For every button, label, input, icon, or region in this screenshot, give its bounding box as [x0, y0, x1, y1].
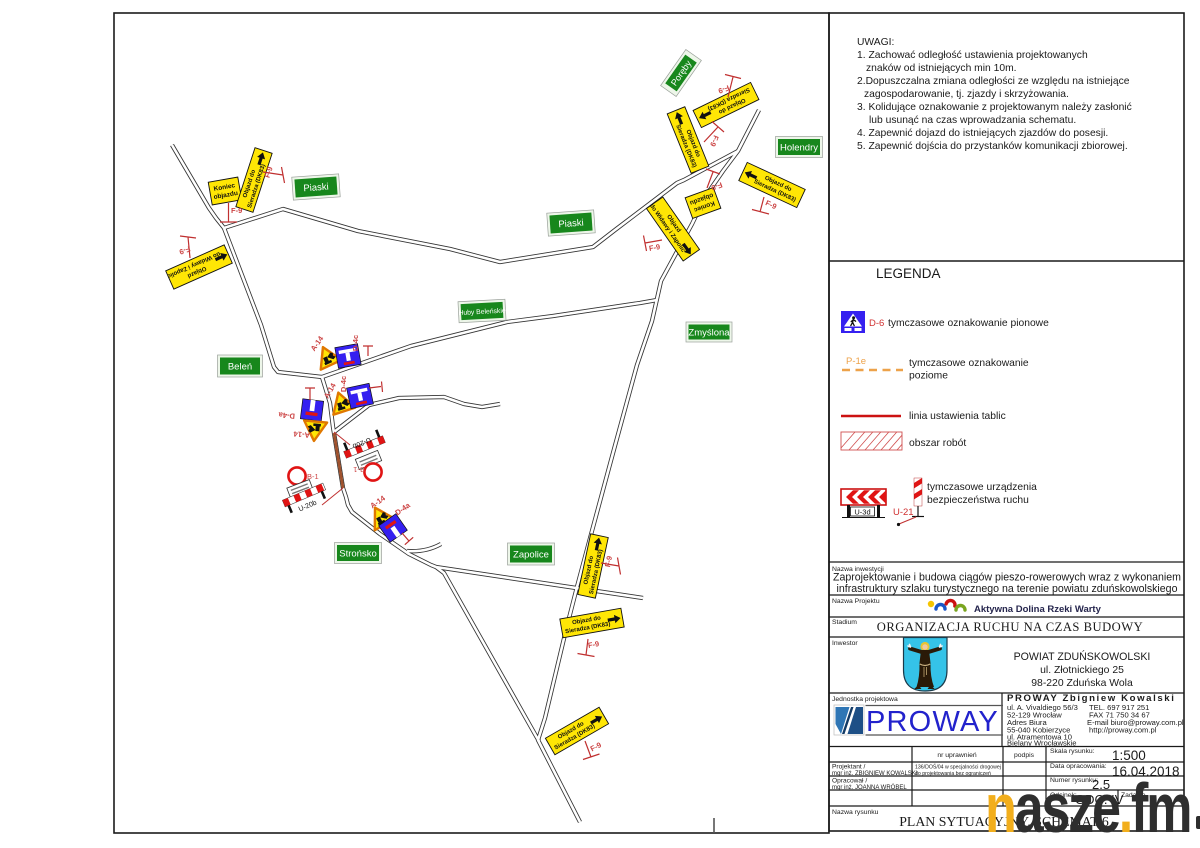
svg-text:LEGENDA: LEGENDA	[876, 266, 941, 281]
svg-text:5. Zapewnić dojścia do przysta: 5. Zapewnić dojścia do przystanków komun…	[857, 141, 1128, 152]
svg-text:U-3d: U-3d	[854, 508, 870, 517]
svg-text:linia ustawienia tablic: linia ustawienia tablic	[909, 411, 1006, 422]
svg-text:F-9: F-9	[589, 740, 603, 753]
svg-text:Nazwa Projektu: Nazwa Projektu	[832, 598, 880, 605]
svg-text:F-9: F-9	[764, 198, 778, 211]
svg-text:tymczasowe oznakowanie pionowe: tymczasowe oznakowanie pionowe	[888, 318, 1049, 329]
svg-text:F-9: F-9	[263, 165, 275, 178]
svg-text:PROWAY: PROWAY	[866, 706, 999, 738]
svg-text:mgr inż. ZBIGNIEW KOWALSKI: mgr inż. ZBIGNIEW KOWALSKI	[832, 771, 918, 777]
svg-text:Stadium: Stadium	[832, 619, 857, 626]
svg-text:Beleń: Beleń	[228, 361, 252, 372]
svg-text:A-14: A-14	[368, 493, 387, 510]
svg-text:ORGANIZACJA RUCHU NA CZAS BUDO: ORGANIZACJA RUCHU NA CZAS BUDOWY	[877, 620, 1144, 634]
svg-text:98-220 Zduńska Wola: 98-220 Zduńska Wola	[1031, 678, 1133, 689]
svg-text:1. Zachować odległość ustawien: 1. Zachować odległość ustawienia projekt…	[857, 50, 1088, 61]
svg-text:4. Zapewnić dojazd do istnieją: 4. Zapewnić dojazd do istniejących zjazd…	[857, 128, 1108, 139]
svg-text:F-9: F-9	[587, 639, 600, 650]
svg-text:Nazwa rysunku: Nazwa rysunku	[832, 809, 879, 816]
svg-text:2.Dopuszczalna zmiana odległoś: 2.Dopuszczalna zmiana odległości ze wzgl…	[857, 76, 1130, 87]
svg-text:Opracował /: Opracował /	[832, 778, 867, 785]
svg-text:Zmyślona: Zmyślona	[688, 327, 730, 338]
svg-text:mgr inż. JOANNA WRÓBEL: mgr inż. JOANNA WRÓBEL	[832, 784, 907, 791]
svg-text:3. Kolidujące oznakowanie z pr: 3. Kolidujące oznakowanie z projektowany…	[857, 102, 1132, 113]
svg-text:Jednostka projektowa: Jednostka projektowa	[832, 696, 898, 703]
svg-text:obszar robót: obszar robót	[909, 438, 966, 449]
svg-text:U-21: U-21	[893, 507, 914, 518]
svg-text:tymczasowe urządzenia: tymczasowe urządzenia	[927, 482, 1037, 493]
svg-text:lub usunąć na czas wprowadzani: lub usunąć na czas wprowadzania schematu…	[869, 115, 1076, 126]
svg-text:P-1e: P-1e	[846, 356, 866, 367]
svg-text:Zaprojektowanie i budowa ciągó: Zaprojektowanie i budowa ciągów pieszo-r…	[833, 572, 1181, 584]
svg-text:Inwestor: Inwestor	[832, 640, 858, 647]
svg-text:D-4c: D-4c	[339, 376, 348, 392]
svg-text:D-6: D-6	[869, 318, 884, 329]
svg-text:Piaski: Piaski	[558, 218, 584, 231]
svg-text:Zapolice: Zapolice	[513, 549, 549, 560]
svg-text:Holendry: Holendry	[780, 142, 818, 153]
svg-text:Skala rysunku:: Skala rysunku:	[1050, 748, 1095, 755]
svg-text:infrastruktury szlaku turystyc: infrastruktury szlaku turystycznego na t…	[837, 583, 1178, 595]
svg-text:D-4c: D-4c	[351, 335, 360, 351]
svg-text:UWAGI:: UWAGI:	[857, 37, 894, 48]
svg-text:zagospodarowanie, tj. zjazdy i: zagospodarowanie, tj. zjazdy i skrzyżowa…	[864, 89, 1069, 100]
svg-text:Strońsko: Strońsko	[339, 548, 377, 559]
svg-text:nr uprawnień: nr uprawnień	[937, 752, 977, 759]
svg-text:Aktywna Dolina Rzeki Warty: Aktywna Dolina Rzeki Warty	[974, 604, 1102, 615]
svg-text:do projektowania bez ogranicze: do projektowania bez ograniczeń	[915, 771, 991, 777]
svg-text:F-9: F-9	[603, 555, 614, 568]
svg-text:F-9: F-9	[231, 206, 242, 215]
svg-text:znaków od istniejących min 10m: znaków od istniejących min 10m.	[866, 63, 1017, 74]
svg-text:1:500: 1:500	[1112, 748, 1146, 763]
svg-text:B-1: B-1	[353, 465, 365, 474]
svg-text:D-4a: D-4a	[277, 410, 295, 420]
svg-text:F-9: F-9	[648, 242, 661, 253]
svg-text:Projektant /: Projektant /	[832, 764, 866, 771]
svg-text:D-4a: D-4a	[393, 500, 412, 517]
svg-text:A-14: A-14	[292, 429, 310, 439]
svg-text:poziome: poziome	[909, 371, 948, 382]
svg-text:podpis: podpis	[1014, 752, 1035, 759]
svg-text:U-20b: U-20b	[298, 499, 318, 513]
svg-text:tymczasowe oznakowanie: tymczasowe oznakowanie	[909, 358, 1029, 369]
svg-text:http://proway.com.pl: http://proway.com.pl	[1089, 726, 1157, 735]
svg-text:POWIAT ZDUŃSKOWOLSKI: POWIAT ZDUŃSKOWOLSKI	[1014, 650, 1151, 663]
svg-text:bezpieczeństwa ruchu: bezpieczeństwa ruchu	[927, 495, 1029, 506]
svg-text:ul. Złotnickiego 25: ul. Złotnickiego 25	[1040, 665, 1124, 676]
svg-text:Bielany Wrocławskie: Bielany Wrocławskie	[1007, 739, 1077, 748]
svg-text:Piaski: Piaski	[303, 182, 329, 195]
